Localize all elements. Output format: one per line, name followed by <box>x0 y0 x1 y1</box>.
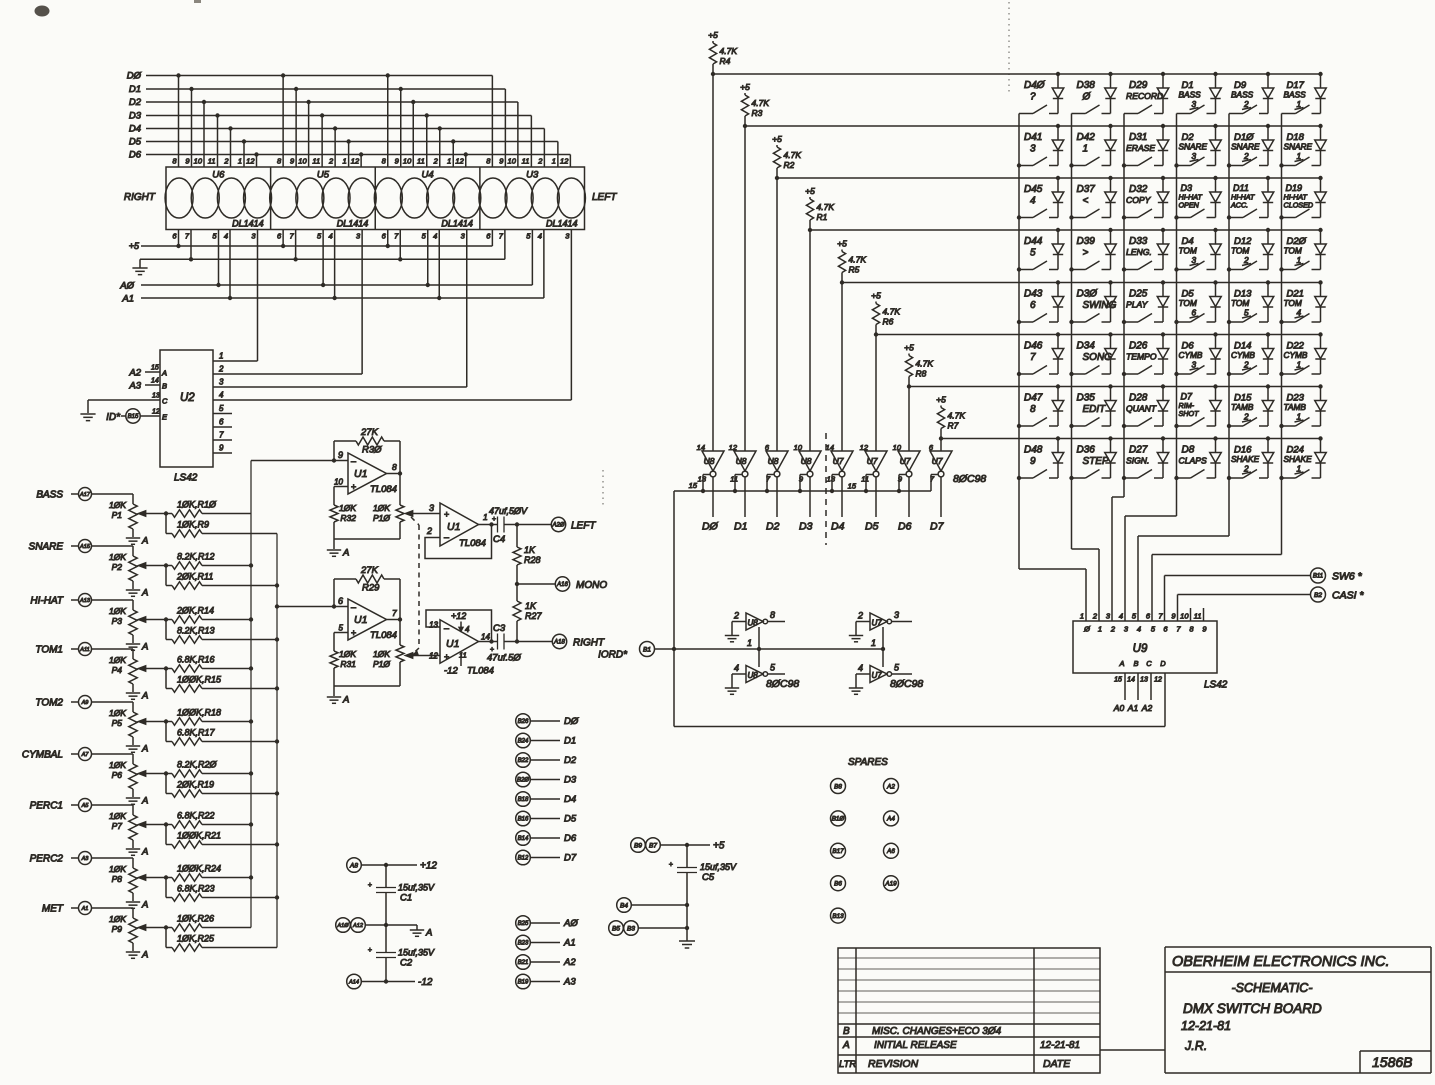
svg-text:CYMB: CYMB <box>1179 350 1203 360</box>
svg-text:4: 4 <box>433 232 437 241</box>
svg-text:P7: P7 <box>112 821 123 831</box>
svg-text:R2: R2 <box>784 160 795 170</box>
svg-text:4.7K: 4.7K <box>948 411 966 421</box>
svg-text:8ØC98: 8ØC98 <box>890 678 923 690</box>
svg-text:1ØK,R1Ø: 1ØK,R1Ø <box>177 500 217 510</box>
svg-text:+: + <box>351 482 356 492</box>
svg-text:12: 12 <box>860 443 869 452</box>
svg-text:B3: B3 <box>627 925 635 932</box>
svg-text:7: 7 <box>219 431 224 440</box>
svg-text:R28: R28 <box>524 555 541 565</box>
svg-text:D2: D2 <box>766 521 780 533</box>
svg-text:U8: U8 <box>748 671 759 680</box>
svg-text:TL084: TL084 <box>467 666 494 677</box>
svg-text:TEMPO: TEMPO <box>1126 352 1157 362</box>
svg-text:2: 2 <box>1092 612 1098 621</box>
svg-text:D3: D3 <box>129 111 142 122</box>
svg-text:U4: U4 <box>421 170 433 181</box>
svg-text:+: + <box>669 862 673 869</box>
svg-text:R5: R5 <box>849 265 860 275</box>
svg-text:10: 10 <box>298 157 307 166</box>
svg-text:D6: D6 <box>564 833 577 844</box>
svg-text:D8: D8 <box>1182 445 1195 456</box>
svg-text:D6: D6 <box>129 150 142 161</box>
svg-text:12: 12 <box>455 157 464 166</box>
svg-text:14: 14 <box>826 443 834 452</box>
svg-text:QUANT: QUANT <box>1126 404 1157 414</box>
svg-text:U1: U1 <box>354 614 367 626</box>
svg-text:5: 5 <box>339 624 344 633</box>
svg-text:D4Ø: D4Ø <box>1024 80 1046 91</box>
svg-text:14: 14 <box>697 443 705 452</box>
svg-text:DØ: DØ <box>564 716 579 727</box>
svg-text:B16: B16 <box>518 817 529 823</box>
svg-text:+5: +5 <box>904 343 914 353</box>
svg-text:2: 2 <box>433 157 439 166</box>
svg-text:PERC2: PERC2 <box>30 854 64 865</box>
svg-text:D42: D42 <box>1077 132 1096 143</box>
svg-text:A2: A2 <box>886 783 895 790</box>
svg-text:A: A <box>342 547 349 558</box>
svg-text:P1Ø: P1Ø <box>373 513 391 523</box>
svg-text:U7: U7 <box>833 456 844 466</box>
svg-text:1ØK: 1ØK <box>109 606 126 616</box>
svg-text:ACC.: ACC. <box>1230 201 1248 210</box>
svg-text:SW6 *: SW6 * <box>1332 571 1363 583</box>
svg-text:R6: R6 <box>883 317 894 327</box>
svg-text:7: 7 <box>1030 352 1036 363</box>
svg-text:P9: P9 <box>112 924 123 934</box>
svg-text:A6: A6 <box>886 848 895 855</box>
svg-text:1: 1 <box>219 352 223 361</box>
svg-text:14: 14 <box>481 633 490 642</box>
svg-text:BASS: BASS <box>36 490 63 501</box>
svg-text:1: 1 <box>1080 612 1084 621</box>
svg-text:A15: A15 <box>79 544 91 550</box>
svg-text:C3: C3 <box>493 623 506 634</box>
svg-text:D4: D4 <box>564 794 576 805</box>
svg-text:RECORD: RECORD <box>1126 91 1163 101</box>
svg-text:SHAKE: SHAKE <box>1231 454 1260 464</box>
svg-text:12: 12 <box>729 443 738 452</box>
svg-text:1ØØK,R21: 1ØØK,R21 <box>177 831 221 841</box>
svg-text:–: – <box>351 456 356 466</box>
svg-text:A19: A19 <box>884 880 897 887</box>
svg-text:DL1414: DL1414 <box>232 219 264 229</box>
svg-text:1: 1 <box>747 638 752 648</box>
svg-text:4: 4 <box>538 232 542 241</box>
svg-text:B2: B2 <box>1314 592 1322 599</box>
svg-text:14: 14 <box>151 378 159 385</box>
svg-text:Ø: Ø <box>1083 625 1091 634</box>
svg-text:P4: P4 <box>112 665 123 675</box>
svg-text:TAMB: TAMB <box>1284 402 1307 412</box>
svg-text:+12: +12 <box>451 611 466 621</box>
svg-text:4.7K: 4.7K <box>784 150 802 160</box>
svg-text:2: 2 <box>426 526 432 536</box>
svg-text:SONG: SONG <box>1083 352 1113 363</box>
svg-text:HI-HAT: HI-HAT <box>30 596 63 607</box>
svg-text:DØ: DØ <box>702 521 719 533</box>
svg-text:13: 13 <box>698 475 707 484</box>
svg-text:11: 11 <box>459 651 467 660</box>
svg-text:D2: D2 <box>129 97 142 108</box>
svg-text:TOM: TOM <box>1284 246 1302 256</box>
svg-text:B4: B4 <box>620 902 628 909</box>
svg-text:12: 12 <box>351 157 360 166</box>
svg-text:1ØK: 1ØK <box>373 649 390 659</box>
svg-text:6.8K,R17: 6.8K,R17 <box>177 728 216 738</box>
svg-text:A: A <box>141 899 148 910</box>
svg-text:12-21-81: 12-21-81 <box>1040 1040 1080 1051</box>
svg-text:D2: D2 <box>564 755 577 766</box>
svg-text:>: > <box>1083 248 1089 259</box>
svg-text:A2: A2 <box>1141 703 1153 713</box>
svg-text:A: A <box>141 641 148 652</box>
svg-text:U1: U1 <box>354 468 367 480</box>
svg-text:13: 13 <box>429 621 438 630</box>
svg-text:DL1414: DL1414 <box>337 219 369 229</box>
svg-text:U8: U8 <box>704 456 715 466</box>
svg-text:3: 3 <box>894 610 899 620</box>
svg-text:B22: B22 <box>518 758 529 764</box>
svg-text:B15: B15 <box>128 414 139 420</box>
svg-text:D3: D3 <box>564 775 577 786</box>
svg-text:1586B: 1586B <box>1372 1054 1412 1070</box>
svg-text:2: 2 <box>857 611 863 621</box>
svg-text:LEFT: LEFT <box>571 521 596 532</box>
svg-text:B11: B11 <box>1313 574 1323 580</box>
svg-text:A14: A14 <box>348 980 359 986</box>
svg-text:SWING: SWING <box>1083 300 1117 311</box>
svg-text:C2: C2 <box>400 958 413 969</box>
svg-text:3: 3 <box>429 503 434 513</box>
svg-text:DMX SWITCH BOARD: DMX SWITCH BOARD <box>1183 1001 1322 1016</box>
svg-text:D43: D43 <box>1024 289 1043 300</box>
svg-text:13: 13 <box>1140 677 1148 684</box>
svg-text:D39: D39 <box>1077 236 1096 247</box>
svg-text:U7: U7 <box>900 456 911 466</box>
svg-text:CASI *: CASI * <box>1332 590 1364 602</box>
svg-text:2ØK,R19: 2ØK,R19 <box>176 780 214 790</box>
svg-text:-SCHEMATIC-: -SCHEMATIC- <box>1231 981 1312 995</box>
svg-text:REVISION: REVISION <box>868 1058 919 1070</box>
svg-text:D46: D46 <box>1024 341 1043 352</box>
svg-text:1ØK: 1ØK <box>109 708 126 718</box>
svg-text:ERASE: ERASE <box>1126 143 1155 153</box>
svg-text:4: 4 <box>465 625 470 634</box>
svg-text:13: 13 <box>827 475 836 484</box>
svg-text:12: 12 <box>1154 677 1162 684</box>
svg-text:U1: U1 <box>447 521 460 533</box>
svg-text:PLAY: PLAY <box>1126 300 1149 310</box>
svg-text:10: 10 <box>508 157 517 166</box>
svg-text:RIGHT: RIGHT <box>573 638 605 649</box>
svg-text:DL1414: DL1414 <box>546 219 578 229</box>
svg-text:TOM: TOM <box>1179 246 1197 256</box>
svg-text:D34: D34 <box>1077 341 1096 352</box>
svg-text:+: + <box>444 510 449 520</box>
svg-text:A11: A11 <box>79 647 90 653</box>
svg-text:D1: D1 <box>564 736 576 747</box>
svg-text:B18: B18 <box>518 797 529 803</box>
svg-text:15: 15 <box>689 481 698 490</box>
svg-text:1ØK: 1ØK <box>109 864 126 874</box>
svg-text:C5: C5 <box>702 872 715 883</box>
svg-text:10: 10 <box>1180 612 1189 621</box>
svg-text:U8: U8 <box>736 456 747 466</box>
svg-text:DATE: DATE <box>1043 1058 1071 1070</box>
svg-text:A: A <box>342 694 349 705</box>
svg-text:R8: R8 <box>916 369 927 379</box>
svg-text:3: 3 <box>1030 144 1036 155</box>
svg-text:AØ: AØ <box>563 918 578 929</box>
svg-text:U5: U5 <box>317 170 330 181</box>
svg-text:1ØØK,R18: 1ØØK,R18 <box>177 708 221 718</box>
svg-text:10: 10 <box>334 478 343 487</box>
svg-text:TOM: TOM <box>1179 298 1197 308</box>
svg-text:+5: +5 <box>129 241 140 251</box>
svg-text:1: 1 <box>552 157 556 166</box>
svg-text:A: A <box>425 927 432 938</box>
svg-text:2ØK,R14: 2ØK,R14 <box>176 606 214 616</box>
svg-text:+: + <box>492 516 496 523</box>
svg-text:D3: D3 <box>799 521 813 533</box>
svg-text:OBERHEIM ELECTRONICS INC.: OBERHEIM ELECTRONICS INC. <box>1172 954 1390 970</box>
svg-text:LEFT: LEFT <box>592 192 617 203</box>
svg-text:+5: +5 <box>772 134 782 144</box>
svg-text:D31: D31 <box>1129 132 1147 143</box>
svg-text:47uf.5Ø: 47uf.5Ø <box>487 653 521 664</box>
svg-text:A: A <box>141 743 148 754</box>
svg-text:SHAKE: SHAKE <box>1284 454 1313 464</box>
svg-text:11: 11 <box>522 157 530 166</box>
svg-text:B1Ø: B1Ø <box>832 816 846 823</box>
svg-text:10: 10 <box>403 157 412 166</box>
svg-text:CLAPS: CLAPS <box>1179 456 1207 466</box>
svg-text:A1: A1 <box>1127 703 1139 713</box>
svg-text:+: + <box>368 947 372 954</box>
svg-text:D44: D44 <box>1024 236 1043 247</box>
svg-text:10: 10 <box>194 157 203 166</box>
svg-text:P8: P8 <box>112 874 123 884</box>
svg-text:P3: P3 <box>112 616 123 626</box>
svg-text:A1Ø: A1Ø <box>336 923 349 929</box>
svg-text:12: 12 <box>429 652 438 661</box>
svg-text:1: 1 <box>483 512 488 522</box>
svg-text:1ØK: 1ØK <box>373 503 390 513</box>
svg-text:1ØK: 1ØK <box>109 500 126 510</box>
svg-text:15uf,35V: 15uf,35V <box>398 948 435 958</box>
svg-text:1: 1 <box>238 157 242 166</box>
svg-text:A0: A0 <box>1113 703 1125 713</box>
svg-text:1ØK: 1ØK <box>109 552 126 562</box>
svg-text:4.7K: 4.7K <box>817 202 835 212</box>
svg-text:3: 3 <box>219 378 224 387</box>
svg-text:14: 14 <box>1127 677 1135 684</box>
svg-text:15uf,35V: 15uf,35V <box>700 862 737 872</box>
svg-text:6.8K,R23: 6.8K,R23 <box>177 884 215 894</box>
svg-text:TOM: TOM <box>1231 298 1249 308</box>
svg-text:11: 11 <box>1194 612 1202 621</box>
svg-text:6.8K,R22: 6.8K,R22 <box>177 811 215 821</box>
svg-text:DL1414: DL1414 <box>441 219 473 229</box>
svg-text:A7: A7 <box>81 752 90 758</box>
svg-text:1ØK,R26: 1ØK,R26 <box>177 914 214 924</box>
svg-text:RIGHT: RIGHT <box>124 192 156 203</box>
svg-text:BASS: BASS <box>1284 90 1307 100</box>
svg-text:D1: D1 <box>129 84 141 95</box>
svg-text:9: 9 <box>1030 456 1036 467</box>
svg-text:R7: R7 <box>948 421 959 431</box>
svg-text:CYMB: CYMB <box>1284 350 1308 360</box>
svg-text:C: C <box>162 397 168 406</box>
svg-text:CYMBAL: CYMBAL <box>22 750 63 761</box>
svg-text:B13: B13 <box>832 913 844 920</box>
svg-text:1K: 1K <box>524 545 536 555</box>
svg-text:10: 10 <box>794 443 803 452</box>
svg-text:A: A <box>1118 659 1124 668</box>
svg-text:2ØK,R11: 2ØK,R11 <box>176 572 213 582</box>
svg-text:4.7K: 4.7K <box>720 46 738 56</box>
svg-text:12: 12 <box>246 157 255 166</box>
svg-text:4: 4 <box>219 391 224 400</box>
svg-text:INITIAL RELEASE: INITIAL RELEASE <box>874 1040 957 1051</box>
svg-text:P5: P5 <box>112 718 123 728</box>
svg-text:27K: 27K <box>360 565 379 576</box>
svg-text:Ø: Ø <box>1082 92 1092 103</box>
svg-text:1ØK: 1ØK <box>339 649 356 659</box>
svg-text:B1: B1 <box>643 646 651 653</box>
svg-text:B8: B8 <box>834 783 842 790</box>
svg-text:D19: D19 <box>1286 183 1303 193</box>
svg-text:11: 11 <box>417 157 425 166</box>
svg-text:+12: +12 <box>420 861 437 872</box>
svg-text:4.7K: 4.7K <box>883 307 901 317</box>
svg-text:4: 4 <box>1030 196 1036 207</box>
svg-text:D5: D5 <box>865 521 879 533</box>
svg-text:P2: P2 <box>112 562 123 572</box>
svg-text:1ØK: 1ØK <box>109 811 126 821</box>
svg-text:D41: D41 <box>1024 132 1042 143</box>
svg-text:2: 2 <box>537 157 543 166</box>
svg-text:BASS: BASS <box>1231 90 1254 100</box>
svg-text:COPY: COPY <box>1126 195 1152 205</box>
svg-text:A2: A2 <box>128 368 141 379</box>
svg-text:1ØK: 1ØK <box>109 914 126 924</box>
svg-text:A: A <box>842 1040 850 1051</box>
svg-text:2: 2 <box>1110 625 1116 634</box>
svg-text:<: < <box>1083 196 1089 207</box>
svg-text:2: 2 <box>733 611 739 621</box>
svg-text:U7: U7 <box>872 671 883 680</box>
svg-text:D7: D7 <box>1181 392 1193 402</box>
svg-text:SNARE: SNARE <box>1231 142 1260 152</box>
svg-text:A: A <box>141 535 148 546</box>
svg-text:LTR: LTR <box>839 1059 856 1070</box>
svg-text:R32: R32 <box>340 513 356 523</box>
svg-text:A13: A13 <box>79 598 91 604</box>
svg-text:SNARE: SNARE <box>1284 142 1313 152</box>
svg-text:U8: U8 <box>748 618 759 627</box>
svg-text:J.R.: J.R. <box>1184 1039 1207 1053</box>
svg-text:A: A <box>141 690 148 701</box>
svg-text:D25: D25 <box>1129 289 1148 300</box>
svg-text:A5: A5 <box>81 803 90 809</box>
svg-text:1ØK: 1ØK <box>109 655 126 665</box>
svg-text:5: 5 <box>219 404 224 413</box>
svg-text:8.2K,R2Ø: 8.2K,R2Ø <box>177 760 218 770</box>
svg-text:B14: B14 <box>518 836 529 842</box>
svg-text:U9: U9 <box>1133 643 1148 655</box>
svg-text:D: D <box>1160 659 1166 668</box>
svg-text:SIGN.: SIGN. <box>1126 456 1149 466</box>
svg-text:4: 4 <box>224 232 228 241</box>
svg-text:U3: U3 <box>526 170 539 181</box>
svg-text:D1: D1 <box>734 521 747 533</box>
svg-text:B17: B17 <box>832 848 844 855</box>
svg-text:4: 4 <box>328 232 332 241</box>
svg-text:4.7K: 4.7K <box>916 359 934 369</box>
svg-text:1ØK: 1ØK <box>339 503 356 513</box>
svg-text:D35: D35 <box>1077 393 1096 404</box>
svg-text:B: B <box>843 1026 850 1037</box>
svg-text:D5: D5 <box>129 137 142 148</box>
svg-text:P1: P1 <box>112 510 123 520</box>
svg-text:10: 10 <box>893 443 902 452</box>
svg-text:4.7K: 4.7K <box>849 255 867 265</box>
svg-text:TL084: TL084 <box>370 630 397 641</box>
svg-text:+: + <box>351 628 356 638</box>
svg-text:8ØC98: 8ØC98 <box>953 473 986 485</box>
svg-text:SPARES: SPARES <box>848 757 888 768</box>
svg-text:12: 12 <box>152 409 160 416</box>
svg-text:AØ: AØ <box>119 281 134 292</box>
svg-text:11: 11 <box>730 475 738 484</box>
svg-text:SNARE: SNARE <box>29 542 64 553</box>
svg-text:1ØK,R25: 1ØK,R25 <box>177 934 215 944</box>
svg-text:+5: +5 <box>805 186 815 196</box>
svg-text:B5: B5 <box>612 925 620 932</box>
svg-text:D4: D4 <box>129 124 141 135</box>
svg-text:1: 1 <box>447 157 451 166</box>
svg-text:9: 9 <box>338 450 343 460</box>
svg-text:-12: -12 <box>444 666 458 677</box>
svg-text:A1: A1 <box>121 294 134 305</box>
svg-text:A: A <box>141 587 148 598</box>
svg-text:B25: B25 <box>518 921 529 927</box>
svg-text:A: A <box>141 949 148 960</box>
svg-text:D11: D11 <box>1233 183 1249 193</box>
svg-text:B7: B7 <box>649 842 657 849</box>
svg-text:B2Ø: B2Ø <box>517 778 529 784</box>
svg-text:1ØØK,R15: 1ØØK,R15 <box>177 675 222 685</box>
svg-text:CYMB: CYMB <box>1231 350 1255 360</box>
svg-text:STEP: STEP <box>1083 456 1109 467</box>
svg-text:8: 8 <box>1030 404 1036 415</box>
svg-text:IORD*: IORD* <box>598 650 628 661</box>
svg-text:R3: R3 <box>752 108 763 118</box>
svg-text:D6: D6 <box>898 521 912 533</box>
svg-text:–: – <box>444 623 449 633</box>
svg-text:U8: U8 <box>801 456 812 466</box>
svg-text:B: B <box>1133 659 1138 668</box>
svg-text:+: + <box>444 652 449 662</box>
svg-text:9: 9 <box>219 444 224 453</box>
svg-text:A3: A3 <box>128 381 141 392</box>
svg-text:A3: A3 <box>563 977 576 988</box>
svg-text:2: 2 <box>328 157 334 166</box>
